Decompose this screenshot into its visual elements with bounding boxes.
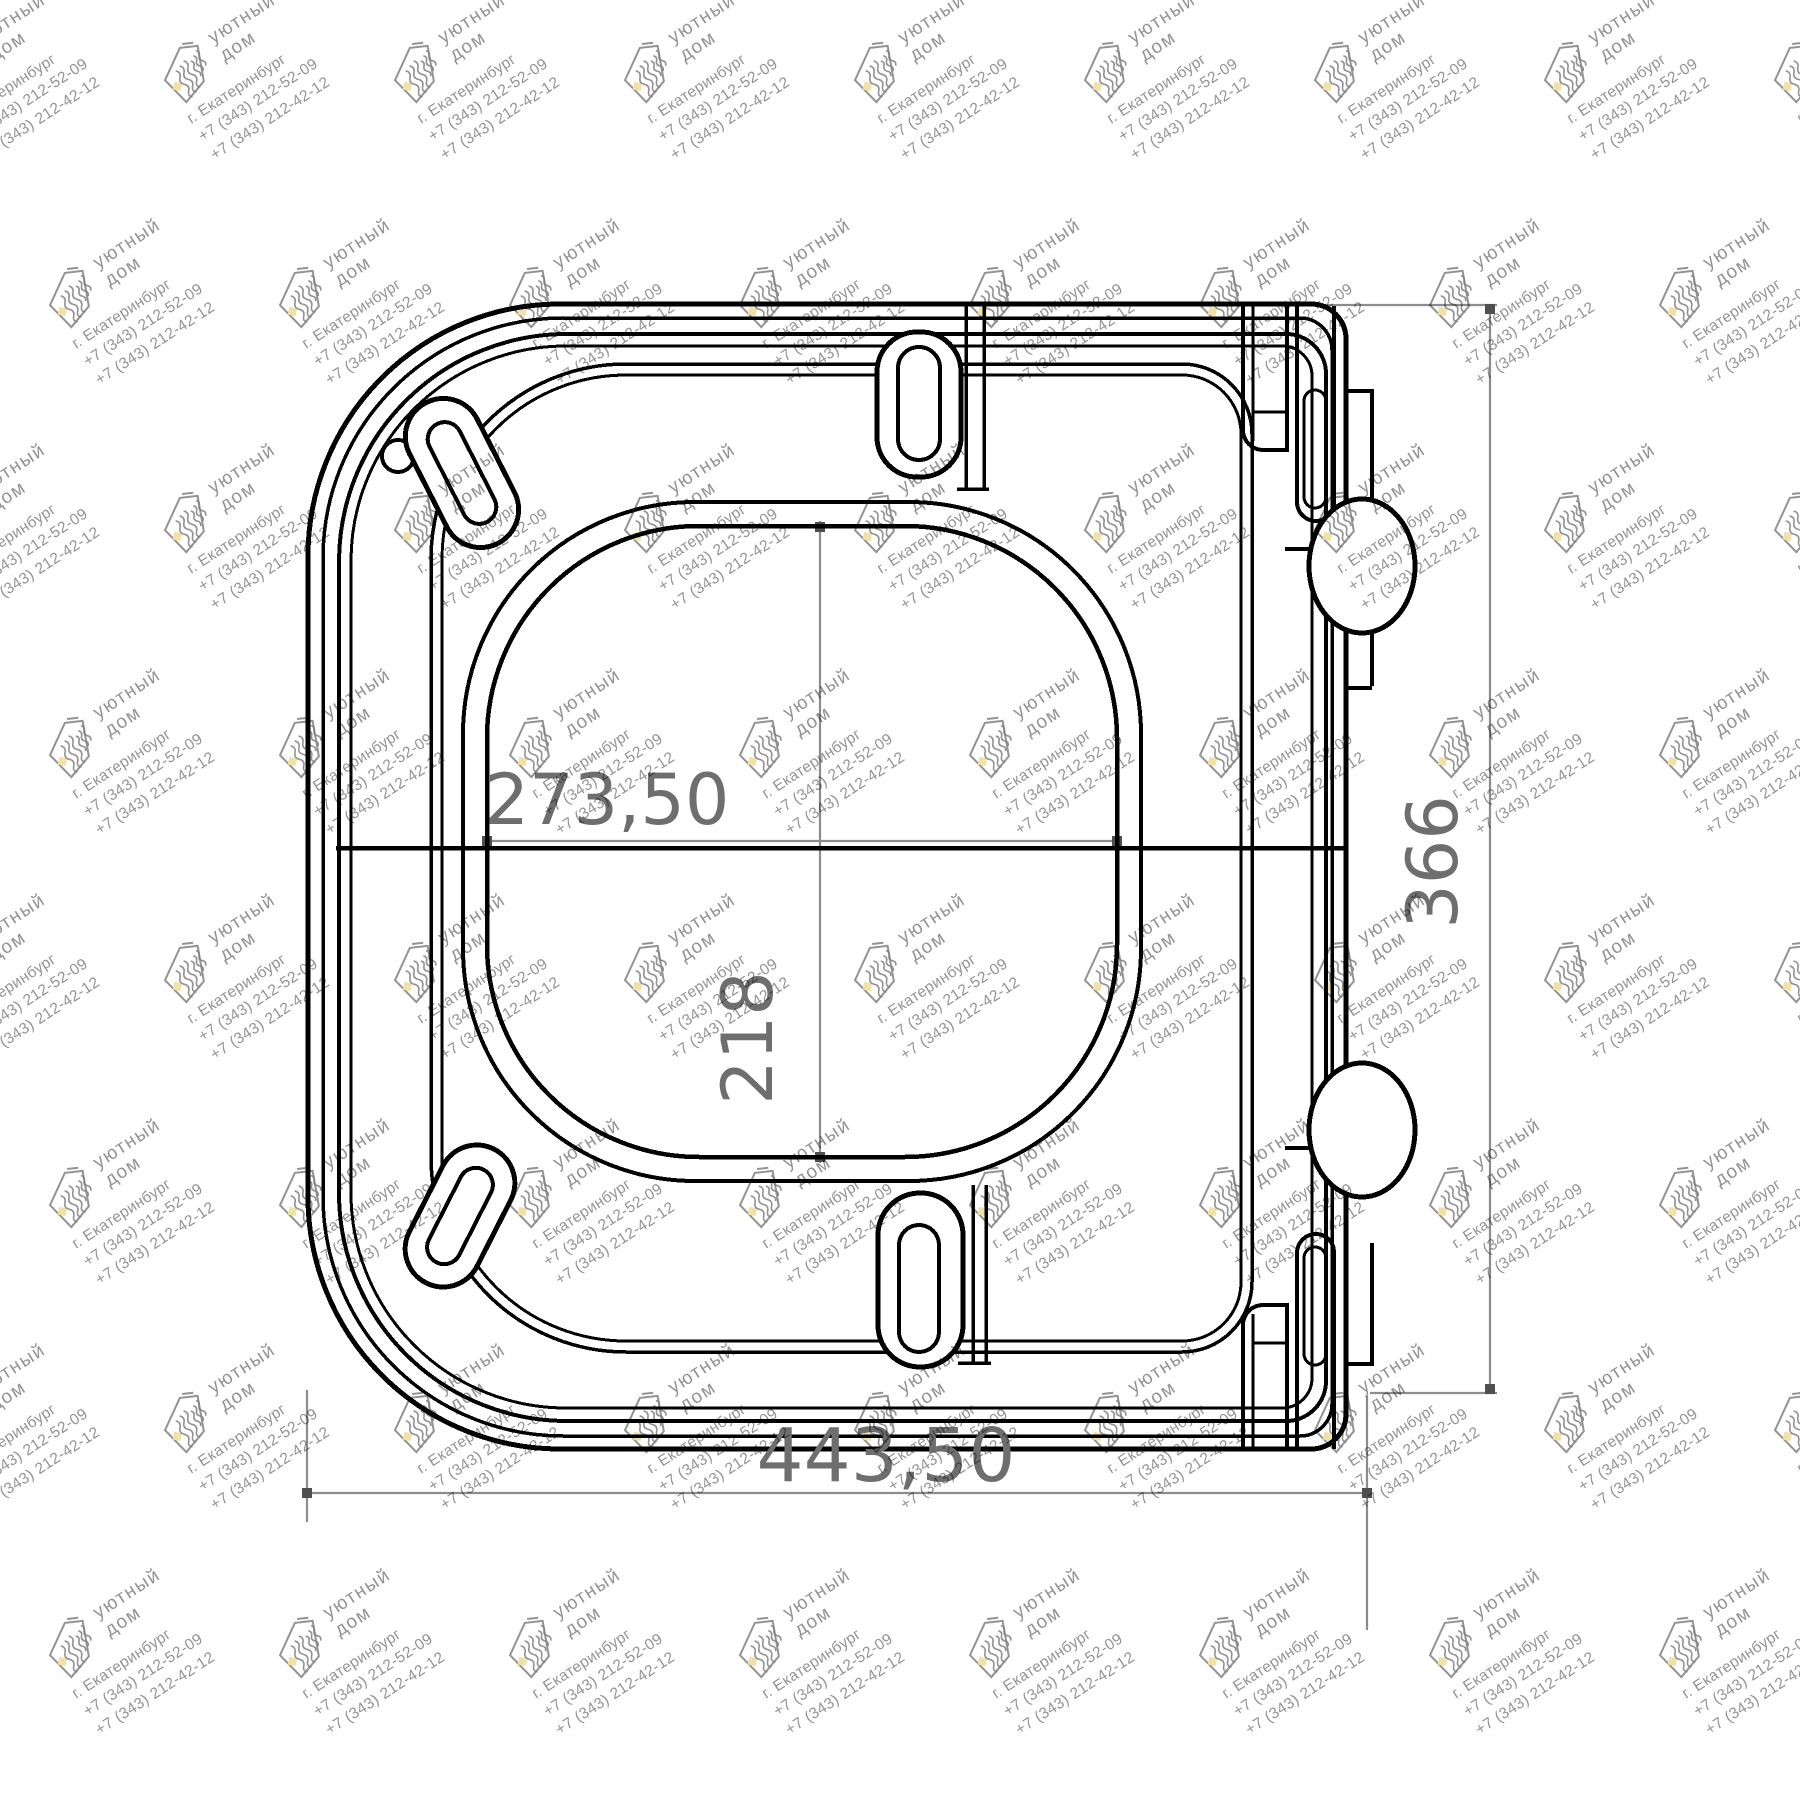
bumper-bottom-left bbox=[392, 1132, 528, 1300]
dimension-overall-height-label: 366 bbox=[1392, 795, 1474, 929]
dimension-overall-width-label: 443,50 bbox=[757, 1413, 1016, 1499]
hinge-bracket-top-lines bbox=[1253, 306, 1287, 441]
hinge-hardware bbox=[1243, 306, 1415, 1449]
hinge-bolt-top-circle bbox=[1309, 499, 1415, 633]
hinge-area-detail-lines bbox=[957, 306, 991, 1363]
hinge-bracket-bottom-lines bbox=[1253, 1314, 1287, 1449]
lid-step-contour-inner-line bbox=[442, 375, 1241, 1341]
hinge-bracket-bottom bbox=[1243, 1305, 1287, 1449]
screenshot-stage: 273,50 218 443,50 366 уютный дом г. bbox=[0, 0, 1800, 1800]
bumper-top-center-inner bbox=[898, 347, 940, 460]
hinge-bolt-bottom-circle bbox=[1309, 1063, 1415, 1197]
dimension-inner-height-label: 218 bbox=[707, 971, 789, 1105]
lid-step-contour bbox=[431, 364, 1252, 1352]
hinge-slot-top-inner bbox=[1304, 390, 1326, 508]
hinge-bracket-top bbox=[1243, 306, 1287, 450]
seat-linework bbox=[308, 304, 1415, 1449]
bumper-top-left bbox=[392, 385, 531, 560]
hinge-slot-bottom-inner bbox=[1304, 1247, 1326, 1365]
dimension-inner-width-label: 273,50 bbox=[485, 759, 730, 841]
bumper-bottom-center-inner bbox=[899, 1225, 939, 1352]
technical-drawing: 273,50 218 443,50 366 bbox=[0, 0, 1800, 1800]
